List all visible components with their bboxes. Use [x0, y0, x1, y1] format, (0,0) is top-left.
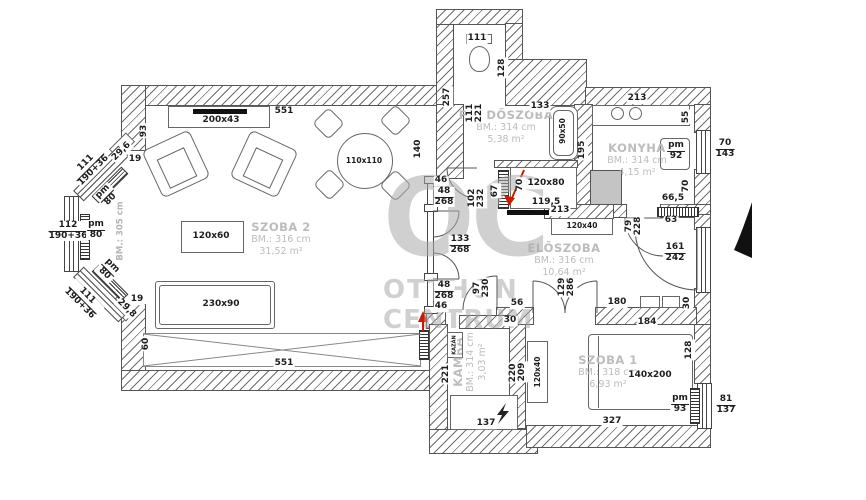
wall [122, 86, 437, 105]
dim-label: 19 [130, 295, 145, 305]
dim-label: 327 [602, 417, 623, 427]
wall [586, 88, 710, 105]
dim-label: 111 [467, 34, 488, 44]
dim-label: pm93 [670, 394, 690, 414]
wall [695, 105, 710, 132]
floor-plan: OC OTTHON CENTRUM SZOBA 2 BM.: 316 cm 31… [0, 0, 866, 500]
partition-node [424, 273, 438, 281]
dim-label: 232 [477, 188, 487, 209]
dim-label: 60 [142, 337, 152, 352]
dim-label: 133 [530, 102, 551, 112]
shelf-bar [193, 109, 247, 114]
dim-label: 184 [637, 318, 658, 328]
wall [506, 24, 522, 64]
dim-label: pm92 [666, 141, 686, 161]
dim-label: 67 [491, 184, 501, 199]
dim-label: 46 [434, 302, 449, 312]
dim-label: 70 [682, 179, 692, 194]
hob-burner [629, 107, 642, 120]
dim-label: 209 [518, 362, 528, 383]
dim-label: 257 [443, 87, 453, 108]
meter-box [662, 296, 680, 308]
dim-label: 286 [567, 277, 577, 298]
dim-label: BM.: 305 cm [117, 200, 126, 261]
dim-label: 133268 [449, 235, 472, 255]
chair [379, 104, 412, 137]
toilet-bowl [469, 46, 490, 72]
dim-label: 180 [607, 298, 628, 308]
dim-label: KAZÁN [452, 335, 457, 354]
room-label-szoba2: SZOBA 2 BM.: 316 cm 31,52 m² [251, 220, 311, 258]
dim-label: 30 [503, 316, 518, 326]
dim-label: 228 [634, 216, 644, 237]
dim-label: 120x40 [566, 222, 599, 230]
dim-label: 48268 [434, 281, 455, 301]
dim-label: 112190+36 [48, 221, 89, 241]
dim-label: 66,5 [661, 194, 685, 204]
dim-label: 30 [683, 296, 693, 311]
north-arrow-icon [734, 202, 752, 258]
dim-label: 140x200 [627, 371, 672, 381]
dim-label: 128 [498, 58, 508, 79]
meter-box [640, 296, 660, 308]
dim-label: 81137 [716, 395, 737, 415]
dim-label: 90x50 [559, 117, 567, 145]
room-label-konyha: KONYHA BM.: 314 cm 4,15 m² [607, 141, 667, 179]
dim-label: 230 [482, 278, 492, 299]
entrance-threshold [507, 210, 549, 215]
dim-label: 230x90 [201, 300, 240, 310]
dim-label: 221 [442, 364, 452, 385]
dim-label: 551 [274, 107, 295, 117]
dim-label: pm80 [86, 220, 106, 240]
dim-label: 551 [274, 359, 295, 369]
hob-burner [611, 107, 624, 120]
dim-label: 213 [550, 206, 571, 216]
chair [312, 107, 345, 140]
dim-label: 55 [682, 110, 692, 125]
room-label-eloszoba: ELŐSZOBA BM.: 316 cm 10,64 m² [527, 241, 600, 279]
dim-label: 137 [476, 419, 497, 429]
dim-label: 161242 [664, 243, 687, 263]
dim-label: 140 [414, 139, 424, 160]
wall [430, 430, 537, 453]
wall [695, 325, 710, 383]
wall [437, 10, 522, 24]
wall [695, 289, 710, 330]
wall [506, 60, 586, 105]
wall [527, 426, 710, 447]
dim-label: 120x80 [526, 179, 565, 189]
dim-label: 93 [140, 124, 150, 139]
dim-label: 120x40 [534, 356, 542, 389]
dim-label: 128 [685, 340, 695, 361]
radiator [419, 330, 429, 360]
dim-label: 70 [516, 178, 526, 193]
dim-label: 70143 [715, 139, 736, 159]
dim-label: 200x43 [201, 116, 240, 126]
dim-label: 120x60 [191, 232, 230, 242]
dim-label: 46 [434, 176, 449, 186]
dim-label: 63 [664, 216, 679, 226]
dim-label: 19 [128, 155, 143, 165]
dim-label: 56 [510, 299, 525, 309]
wall [122, 371, 445, 390]
window [696, 130, 711, 174]
dim-label: 110x110 [345, 157, 383, 165]
entry-door-glass [696, 227, 711, 293]
dim-label: 48268 [434, 187, 455, 207]
radiator [690, 388, 700, 424]
dim-label: 221 [475, 103, 485, 124]
dim-label: 213 [627, 94, 648, 104]
dim-label: 195 [578, 140, 588, 161]
